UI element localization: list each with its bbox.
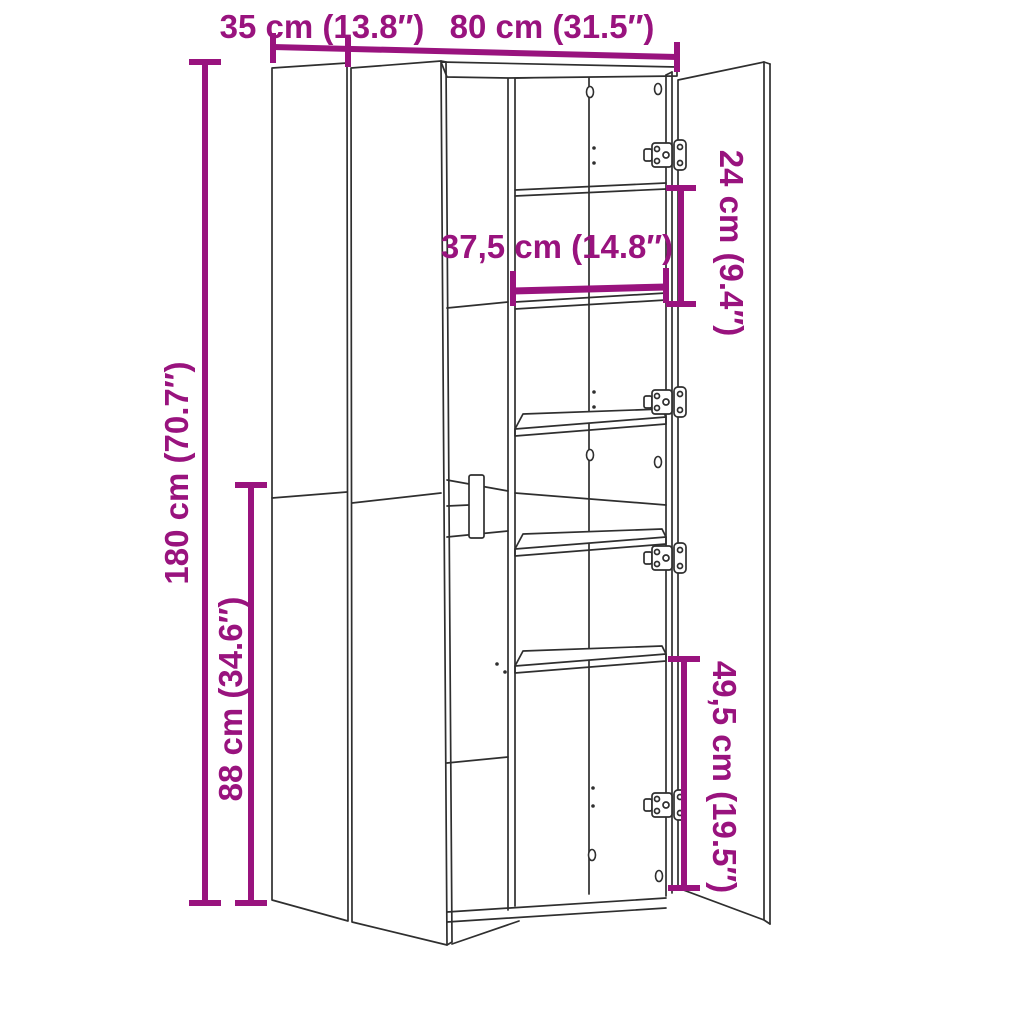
door-handle (447, 475, 484, 538)
dim-label-lower-section: 88 cm (34.6″) (212, 597, 249, 802)
cabinet-side-panel (272, 63, 348, 921)
interior-shelf (515, 293, 666, 309)
cabinet-top-panel (441, 62, 677, 78)
dimension-diagram: 35 cm (13.8″) 80 cm (31.5″) 180 cm (70.7… (0, 0, 1024, 1024)
interior-shelf (515, 183, 666, 196)
dim-label-top-compartment: 24 cm (9.4″) (713, 150, 750, 336)
dimension-labels: 35 cm (13.8″) 80 cm (31.5″) 180 cm (70.7… (158, 8, 750, 893)
dim-label-height: 180 cm (70.7″) (158, 361, 195, 584)
cabinet-interior-back (515, 75, 666, 894)
hinge (644, 543, 686, 573)
dim-label-bottom-compartment: 49,5 cm (19.5″) (706, 661, 743, 893)
cabinet-base (447, 898, 666, 944)
cabinet-drawing (272, 61, 770, 945)
cabinet-partition (508, 78, 515, 910)
dim-label-width: 80 cm (31.5″) (450, 8, 655, 45)
dim-label-depth: 35 cm (13.8″) (220, 8, 425, 45)
interior-shelf (515, 409, 666, 436)
cabinet-right-edge (666, 72, 672, 896)
interior-shelf (515, 529, 666, 556)
interior-shelf (515, 646, 666, 673)
hinge (644, 790, 686, 820)
closed-left-door (351, 61, 452, 945)
dim-label-inner-width: 37,5 cm (14.8″) (441, 228, 673, 265)
hinge (644, 140, 686, 170)
